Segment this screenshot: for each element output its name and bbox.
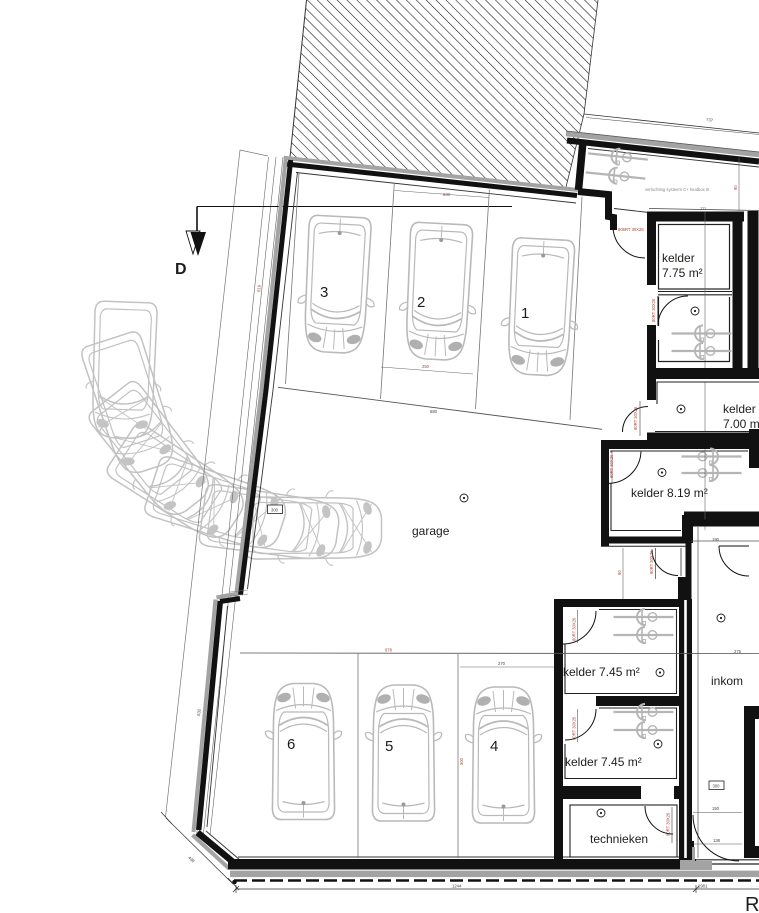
svg-text:150: 150 [712,806,720,811]
svg-text:300: 300 [713,784,721,789]
svg-text:819: 819 [256,284,262,292]
svg-text:190: 190 [712,537,720,542]
svg-text:verluchting systeem C+ heatbox: verluchting systeem C+ heatbox III [645,187,709,192]
svg-text:111: 111 [700,206,707,211]
svg-text:3: 3 [320,284,328,301]
svg-text:7.00 m²: 7.00 m² [723,417,759,431]
svg-text:7.75 m²: 7.75 m² [662,266,703,280]
svg-text:80RT 30X26: 80RT 30X26 [633,406,638,430]
svg-text:R: R [745,894,759,913]
svg-text:5: 5 [385,738,393,755]
svg-text:80RT 30X26: 80RT 30X26 [609,454,614,478]
svg-text:250: 250 [422,364,430,369]
svg-text:80RT 30X26: 80RT 30X26 [651,298,656,322]
svg-text:kelder 7.45 m²: kelder 7.45 m² [563,665,640,679]
svg-text:80RT 30X26: 80RT 30X26 [572,617,577,641]
svg-text:kelder: kelder [723,402,756,416]
svg-text:500: 500 [459,757,464,765]
svg-text:technieken: technieken [590,832,648,846]
svg-text:878: 878 [385,648,393,653]
svg-text:906RT 30X26: 906RT 30X26 [618,227,644,232]
svg-text:90: 90 [617,570,622,575]
svg-text:737: 737 [706,117,714,123]
svg-text:632: 632 [196,708,202,716]
svg-text:300: 300 [271,508,279,513]
svg-text:garage: garage [412,524,450,538]
svg-text:830: 830 [443,192,451,197]
svg-text:4: 4 [490,738,498,755]
svg-text:inkom: inkom [711,674,743,688]
svg-text:90RT 30X26: 90RT 30X26 [649,550,654,574]
svg-text:138: 138 [713,838,721,843]
svg-text:80RT 30X26: 80RT 30X26 [666,812,671,836]
svg-text:2981: 2981 [698,884,708,889]
svg-text:1: 1 [521,305,529,322]
svg-text:D: D [175,261,187,278]
svg-text:6: 6 [287,736,295,753]
svg-text:1244: 1244 [452,884,462,889]
svg-text:2: 2 [417,294,425,311]
svg-text:270: 270 [498,661,506,666]
svg-text:80RT 30X26: 80RT 30X26 [572,716,577,740]
svg-text:90: 90 [733,185,738,190]
svg-text:680: 680 [430,409,438,414]
svg-text:kelder 8.19 m²: kelder 8.19 m² [631,486,708,500]
svg-text:kelder: kelder [662,251,695,265]
svg-text:kelder 7.45 m²: kelder 7.45 m² [565,755,642,769]
